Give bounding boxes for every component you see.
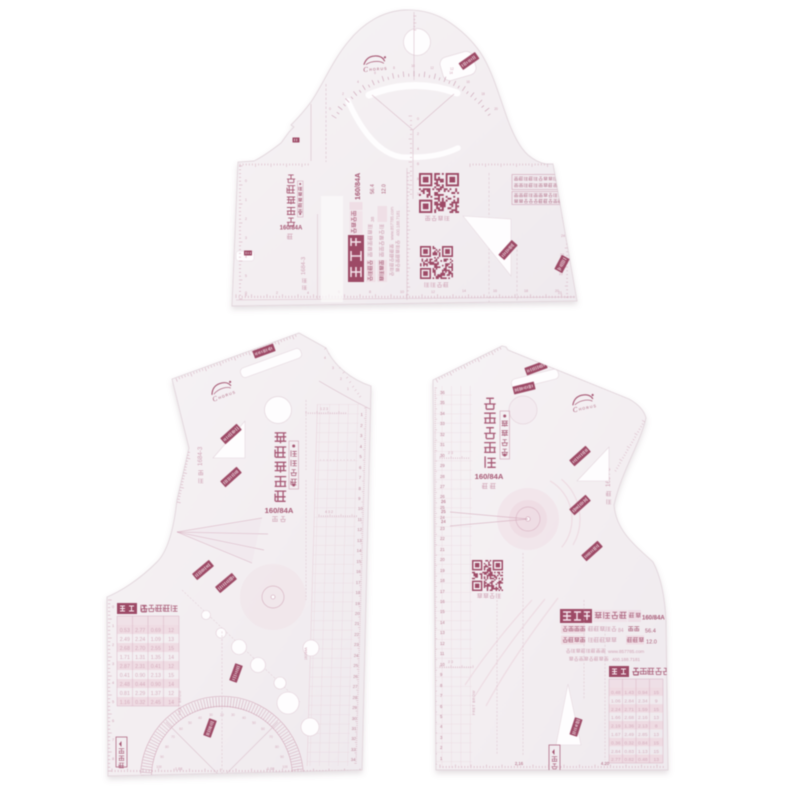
svg-text:2.13: 2.13 <box>638 724 648 730</box>
svg-text:1.16: 1.16 <box>120 700 130 706</box>
svg-text:14: 14 <box>168 655 174 661</box>
svg-text:9: 9 <box>655 698 658 704</box>
svg-text:18: 18 <box>481 92 485 96</box>
svg-text:80: 80 <box>275 745 279 749</box>
svg-text:0: 0 <box>329 107 331 111</box>
svg-text:2.68: 2.68 <box>120 646 130 652</box>
svg-text:2: 2 <box>340 377 342 381</box>
svg-text:0.90: 0.90 <box>135 673 145 679</box>
svg-text:30: 30 <box>231 713 235 717</box>
svg-text:0: 0 <box>112 605 114 609</box>
svg-text:29: 29 <box>440 463 445 468</box>
svg-text:31: 31 <box>352 726 357 731</box>
svg-text:4 3 2: 4 3 2 <box>325 510 333 514</box>
svg-text:7: 7 <box>112 738 114 742</box>
svg-text:12.0: 12.0 <box>382 184 388 194</box>
svg-text:2.34: 2.34 <box>638 698 648 704</box>
svg-text:4: 4 <box>417 147 419 151</box>
svg-text:80: 80 <box>165 745 169 749</box>
svg-text:2.77: 2.77 <box>611 757 621 763</box>
svg-text:32: 32 <box>440 432 445 437</box>
svg-text:1684-3: 1684-3 <box>301 257 307 275</box>
svg-text:0.90: 0.90 <box>151 682 161 688</box>
svg-text:3: 3 <box>112 662 114 666</box>
svg-text:160/84A: 160/84A <box>265 506 294 515</box>
svg-text:33: 33 <box>440 421 445 426</box>
svg-text:10: 10 <box>411 64 415 68</box>
svg-text:0.32: 0.32 <box>135 700 145 706</box>
svg-text:60: 60 <box>261 727 265 731</box>
svg-text:28: 28 <box>440 474 445 479</box>
svg-text:31: 31 <box>440 442 445 447</box>
svg-text:16: 16 <box>493 289 497 293</box>
svg-text:4: 4 <box>324 356 326 360</box>
svg-text:20: 20 <box>440 557 445 562</box>
svg-text:90: 90 <box>280 755 284 759</box>
svg-text:1.66: 1.66 <box>611 715 621 721</box>
svg-text:29: 29 <box>352 705 357 710</box>
svg-text:16: 16 <box>466 80 470 84</box>
svg-text:C: C <box>363 65 369 73</box>
svg-text:0.82: 0.82 <box>624 757 634 763</box>
svg-text:1.06: 1.06 <box>611 698 621 704</box>
svg-text:6: 6 <box>374 71 376 75</box>
svg-text:1.43: 1.43 <box>624 690 634 696</box>
svg-text:8: 8 <box>655 724 658 730</box>
svg-text:26: 26 <box>441 499 446 504</box>
svg-text:2.31: 2.31 <box>135 664 145 670</box>
svg-text:24: 24 <box>354 653 359 658</box>
svg-text:2.24: 2.24 <box>135 637 145 643</box>
svg-text:30: 30 <box>209 713 213 717</box>
svg-text:12: 12 <box>168 664 174 670</box>
svg-text:22: 22 <box>354 632 359 637</box>
svg-text:0.53: 0.53 <box>120 628 130 634</box>
svg-text:0.48: 0.48 <box>611 690 621 696</box>
svg-text:13: 13 <box>653 757 659 763</box>
svg-text:24: 24 <box>441 519 446 524</box>
svg-text:18: 18 <box>355 590 360 595</box>
svg-text:www.857785.com: www.857785.com <box>390 206 395 240</box>
svg-text:1 2 3: 1 2 3 <box>320 407 328 411</box>
svg-text:2.84: 2.84 <box>624 698 634 704</box>
svg-text:19: 19 <box>355 601 360 606</box>
svg-text:2.84: 2.84 <box>611 749 621 755</box>
svg-text:13: 13 <box>653 732 659 738</box>
svg-text:8: 8 <box>112 757 114 761</box>
svg-text:2: 2 <box>417 132 419 136</box>
svg-text:FRET BROW: FRET BROW <box>178 690 182 715</box>
svg-text:2.70: 2.70 <box>135 646 145 652</box>
svg-text:13: 13 <box>440 630 445 635</box>
svg-text:14: 14 <box>440 620 445 625</box>
svg-text:2.49: 2.49 <box>624 732 634 738</box>
svg-text:0.32: 0.32 <box>624 740 634 746</box>
svg-text:23: 23 <box>440 526 445 531</box>
svg-text:2: 2 <box>342 92 344 96</box>
svg-text:28: 28 <box>352 695 357 700</box>
svg-text:160/84A: 160/84A <box>304 647 308 660</box>
svg-text:17: 17 <box>356 580 361 585</box>
svg-text:1.09: 1.09 <box>151 637 161 643</box>
svg-text:18: 18 <box>440 578 445 583</box>
svg-text:2.85: 2.85 <box>638 732 648 738</box>
svg-text:1.13: 1.13 <box>638 749 648 755</box>
svg-text:15: 15 <box>168 646 174 652</box>
svg-text:40: 40 <box>242 716 246 720</box>
svg-text:0.69: 0.69 <box>151 628 161 634</box>
svg-text:6: 6 <box>112 719 114 723</box>
svg-text:8: 8 <box>369 290 371 294</box>
svg-text:1.37: 1.37 <box>151 691 161 697</box>
svg-text:16: 16 <box>440 599 445 604</box>
svg-text:40: 40 <box>198 716 202 720</box>
svg-text:2.16: 2.16 <box>515 761 524 766</box>
svg-text:70: 70 <box>269 735 273 739</box>
svg-text:0.36: 0.36 <box>611 740 621 746</box>
svg-text:4: 4 <box>245 255 247 259</box>
svg-text:6: 6 <box>417 162 419 166</box>
svg-text:3: 3 <box>332 366 334 370</box>
svg-text:36: 36 <box>440 390 445 395</box>
svg-text:15: 15 <box>440 609 445 614</box>
svg-text:70: 70 <box>171 735 175 739</box>
svg-text:4: 4 <box>307 291 309 295</box>
svg-text:26: 26 <box>353 674 358 679</box>
svg-text:2: 2 <box>112 643 114 647</box>
svg-text:30: 30 <box>352 716 357 721</box>
svg-text:20: 20 <box>494 107 498 111</box>
svg-text:100: 100 <box>156 765 162 769</box>
svg-text:0: 0 <box>417 117 419 121</box>
svg-text:50: 50 <box>252 721 256 725</box>
svg-text:4: 4 <box>112 681 114 685</box>
svg-text:38: 38 <box>370 216 376 222</box>
svg-text:2.87: 2.87 <box>120 664 130 670</box>
svg-text:14: 14 <box>449 71 453 75</box>
svg-text:2: 2 <box>276 291 278 295</box>
svg-text:0.94: 0.94 <box>638 690 648 696</box>
svg-text:3: 3 <box>245 236 247 240</box>
svg-text:60: 60 <box>179 727 183 731</box>
svg-text:19: 19 <box>440 568 445 573</box>
svg-text:160/84A: 160/84A <box>642 616 665 622</box>
svg-text:30: 30 <box>440 453 445 458</box>
svg-text:13: 13 <box>357 538 362 543</box>
svg-text:2.48: 2.48 <box>120 682 130 688</box>
svg-text:8: 8 <box>393 66 395 70</box>
svg-text:0.48: 0.48 <box>638 757 648 763</box>
svg-text:1.68: 1.68 <box>175 767 182 771</box>
svg-text:35: 35 <box>440 400 445 405</box>
svg-text:2.29: 2.29 <box>135 691 145 697</box>
svg-text:1.67: 1.67 <box>611 732 621 738</box>
svg-text:12: 12 <box>440 641 445 646</box>
svg-text:15: 15 <box>653 707 659 713</box>
svg-text:2.55: 2.55 <box>151 646 161 652</box>
svg-text:2 3: 2 3 <box>448 451 453 455</box>
svg-text:12.0: 12.0 <box>646 640 657 646</box>
svg-text:0.84: 0.84 <box>638 740 648 746</box>
svg-text:12: 12 <box>430 66 434 70</box>
svg-text:5: 5 <box>112 700 114 704</box>
svg-text:15: 15 <box>653 749 659 755</box>
svg-text:0.81: 0.81 <box>120 691 130 697</box>
svg-text:18: 18 <box>524 289 528 293</box>
svg-text:14: 14 <box>168 682 174 688</box>
svg-text:400.188.7181: 400.188.7181 <box>612 657 641 662</box>
svg-text:15: 15 <box>653 690 659 696</box>
svg-text:4.20: 4.20 <box>601 761 610 766</box>
svg-text:0.41: 0.41 <box>151 664 161 670</box>
svg-text:21: 21 <box>440 547 445 552</box>
svg-text:2: 2 <box>245 217 247 221</box>
svg-text:2.45: 2.45 <box>151 700 161 706</box>
svg-text:20: 20 <box>355 611 360 616</box>
svg-text:10: 10 <box>400 290 404 294</box>
svg-text:2.77: 2.77 <box>135 628 145 634</box>
svg-text:15: 15 <box>356 559 361 564</box>
svg-text:90: 90 <box>160 755 164 759</box>
svg-text:84: 84 <box>618 628 624 634</box>
svg-text:13: 13 <box>168 637 174 643</box>
svg-text:1.71: 1.71 <box>120 655 130 661</box>
svg-text:14: 14 <box>462 289 466 293</box>
svg-text:2.19: 2.19 <box>611 724 621 730</box>
svg-text:100: 100 <box>282 765 288 769</box>
svg-text:11: 11 <box>440 651 445 656</box>
svg-text:17: 17 <box>440 589 445 594</box>
svg-text:22: 22 <box>440 536 445 541</box>
svg-text:12: 12 <box>168 628 174 634</box>
svg-text:160/84A: 160/84A <box>475 472 504 481</box>
svg-text:0.83: 0.83 <box>624 749 634 755</box>
svg-text:8: 8 <box>417 177 419 181</box>
svg-text:21: 21 <box>558 291 562 295</box>
svg-text:15: 15 <box>168 673 174 679</box>
svg-text:24: 24 <box>561 234 565 238</box>
svg-text:6: 6 <box>245 293 247 297</box>
svg-text:2.16: 2.16 <box>638 715 648 721</box>
svg-text:27: 27 <box>440 484 445 489</box>
svg-text:25: 25 <box>441 509 446 514</box>
svg-text:15: 15 <box>653 740 659 746</box>
svg-text:1: 1 <box>347 387 349 391</box>
svg-text:2.13: 2.13 <box>151 673 161 679</box>
svg-text:12: 12 <box>168 691 174 697</box>
svg-text:33: 33 <box>351 747 356 752</box>
svg-text:50: 50 <box>188 721 192 725</box>
svg-text:56.4: 56.4 <box>370 184 376 194</box>
svg-text:1.31: 1.31 <box>135 655 145 661</box>
svg-text:1.59: 1.59 <box>638 707 648 713</box>
svg-text:0: 0 <box>245 179 247 183</box>
svg-text:56.4: 56.4 <box>645 629 656 635</box>
svg-text:2.24: 2.24 <box>611 707 621 713</box>
svg-text:400.188.7181: 400.188.7181 <box>396 210 401 236</box>
svg-text:2.71: 2.71 <box>624 707 634 713</box>
svg-text:1.36: 1.36 <box>624 724 634 730</box>
svg-text:1: 1 <box>245 198 247 202</box>
svg-text:160/84A: 160/84A <box>353 173 362 200</box>
svg-text:0.44: 0.44 <box>135 682 145 688</box>
svg-text:13: 13 <box>653 715 659 721</box>
svg-text:34: 34 <box>440 411 445 416</box>
svg-text:2.49: 2.49 <box>120 637 130 643</box>
svg-text:1: 1 <box>112 624 114 628</box>
svg-text:14: 14 <box>168 700 174 706</box>
svg-text:4: 4 <box>357 80 359 84</box>
svg-text:2 3: 2 3 <box>448 660 453 664</box>
svg-text:5: 5 <box>245 274 247 278</box>
svg-text:2.68: 2.68 <box>624 715 634 721</box>
svg-text:FRET BROW: FRET BROW <box>472 690 476 715</box>
svg-text:1684-3: 1684-3 <box>197 446 204 466</box>
svg-text:12: 12 <box>431 290 435 294</box>
svg-text:10: 10 <box>440 662 445 667</box>
svg-text:0.41: 0.41 <box>120 673 130 679</box>
svg-text:www.857785.com: www.857785.com <box>608 649 644 654</box>
svg-text:160/84A: 160/84A <box>280 226 303 232</box>
svg-text:1.35: 1.35 <box>151 655 161 661</box>
